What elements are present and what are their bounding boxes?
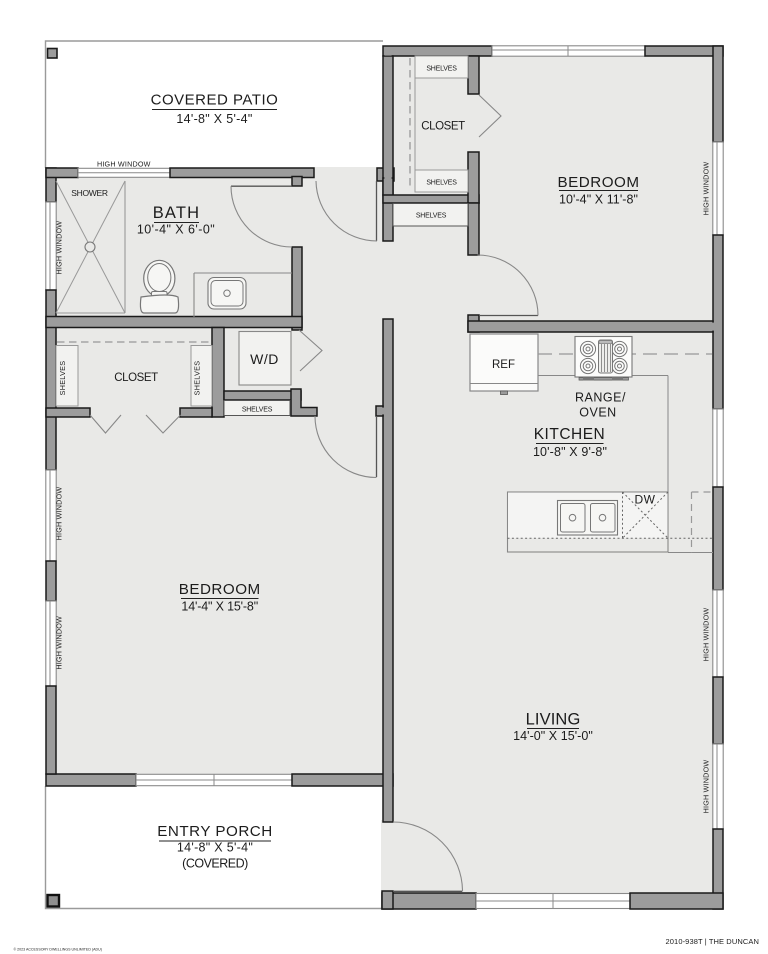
- svg-text:10'-4" X 6'-0": 10'-4" X 6'-0": [137, 223, 215, 237]
- svg-text:REF: REF: [492, 359, 515, 371]
- svg-text:HIGH WINDOW: HIGH WINDOW: [701, 608, 710, 662]
- svg-text:SHELVES: SHELVES: [426, 180, 457, 187]
- svg-text:HIGH WINDOW: HIGH WINDOW: [54, 487, 63, 541]
- svg-text:HIGH WINDOW: HIGH WINDOW: [701, 760, 710, 814]
- svg-text:10'-8" X 9'-8": 10'-8" X 9'-8": [533, 445, 607, 459]
- svg-text:SHELVES: SHELVES: [58, 361, 67, 396]
- svg-text:SHELVES: SHELVES: [242, 407, 273, 414]
- svg-text:HIGH WINDOW: HIGH WINDOW: [97, 159, 151, 168]
- svg-text:CLOSET: CLOSET: [421, 121, 465, 133]
- svg-text:HIGH WINDOW: HIGH WINDOW: [54, 221, 63, 275]
- svg-text:HIGH WINDOW: HIGH WINDOW: [701, 162, 710, 216]
- svg-text:COVERED PATIO: COVERED PATIO: [151, 91, 279, 108]
- svg-text:BATH: BATH: [153, 204, 201, 222]
- svg-text:(COVERED): (COVERED): [182, 856, 248, 870]
- svg-text:SHELVES: SHELVES: [426, 66, 457, 73]
- svg-text:LIVING: LIVING: [526, 711, 581, 729]
- svg-text:W/D: W/D: [250, 351, 279, 367]
- svg-text:ENTRY PORCH: ENTRY PORCH: [157, 823, 273, 840]
- svg-text:BEDROOM: BEDROOM: [558, 174, 640, 191]
- svg-text:14'-8" X 5'-4": 14'-8" X 5'-4": [176, 112, 252, 126]
- svg-text:© 2023 ACCESSORY DWELLINGS UNL: © 2023 ACCESSORY DWELLINGS UNLIMITED (AD…: [14, 948, 102, 952]
- svg-text:10'-4" X 11'-8": 10'-4" X 11'-8": [559, 193, 638, 207]
- svg-text:RANGE/: RANGE/: [575, 391, 626, 405]
- svg-text:DW: DW: [635, 493, 656, 507]
- svg-text:KITCHEN: KITCHEN: [534, 426, 606, 443]
- svg-text:14'-8" X 5'-4": 14'-8" X 5'-4": [177, 841, 253, 855]
- svg-text:HIGH WINDOW: HIGH WINDOW: [54, 616, 63, 670]
- svg-text:14'-0" X 15'-0": 14'-0" X 15'-0": [513, 729, 593, 743]
- svg-text:14'-4" X 15'-8": 14'-4" X 15'-8": [181, 600, 258, 614]
- svg-text:SHELVES: SHELVES: [193, 361, 202, 396]
- svg-text:2010-938T | THE DUNCAN: 2010-938T | THE DUNCAN: [666, 937, 760, 946]
- svg-text:SHELVES: SHELVES: [416, 213, 447, 220]
- svg-text:CLOSET: CLOSET: [114, 372, 158, 384]
- svg-text:BEDROOM: BEDROOM: [179, 581, 261, 598]
- svg-text:SHOWER: SHOWER: [71, 188, 108, 198]
- svg-text:OVEN: OVEN: [579, 406, 616, 420]
